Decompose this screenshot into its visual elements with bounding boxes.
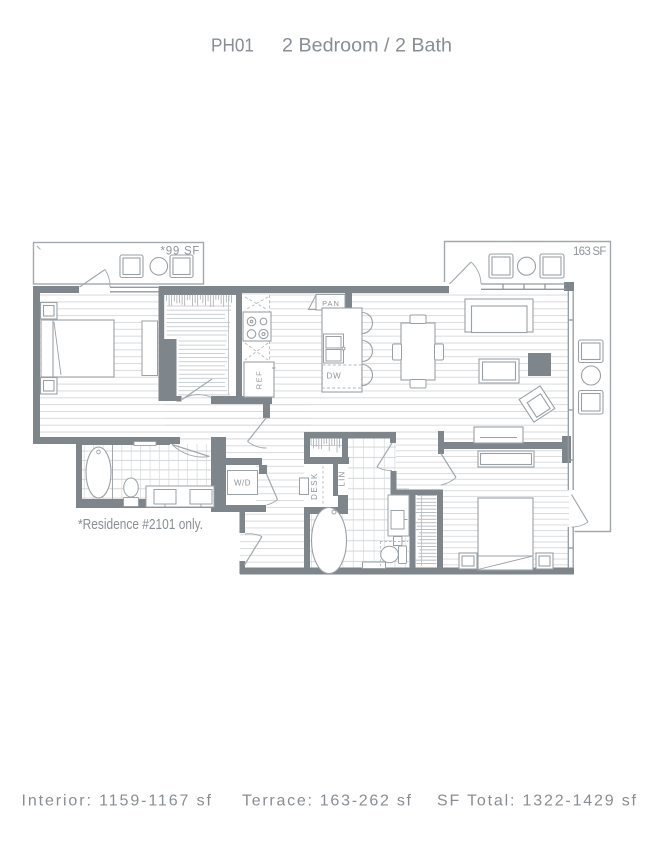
svg-text:DW: DW: [327, 372, 342, 381]
svg-text:Terrace: 163-262 sf: Terrace: 163-262 sf: [242, 793, 412, 810]
svg-text:PAN: PAN: [322, 299, 340, 308]
svg-text:*Residence #2101 only.: *Residence #2101 only.: [78, 517, 203, 533]
svg-text:SF Total: 1322-1429 sf: SF Total: 1322-1429 sf: [437, 793, 637, 810]
svg-text:Interior: 1159-1167 sf: Interior: 1159-1167 sf: [22, 793, 212, 810]
svg-text:REF: REF: [255, 370, 264, 390]
svg-text:2 Bedroom / 2 Bath: 2 Bedroom / 2 Bath: [282, 35, 452, 57]
svg-text:PH01: PH01: [211, 35, 254, 56]
svg-text:DESK: DESK: [310, 472, 319, 500]
svg-text:W/D: W/D: [234, 479, 251, 488]
svg-text:LIN: LIN: [338, 470, 347, 486]
svg-text:163 SF: 163 SF: [573, 246, 607, 258]
